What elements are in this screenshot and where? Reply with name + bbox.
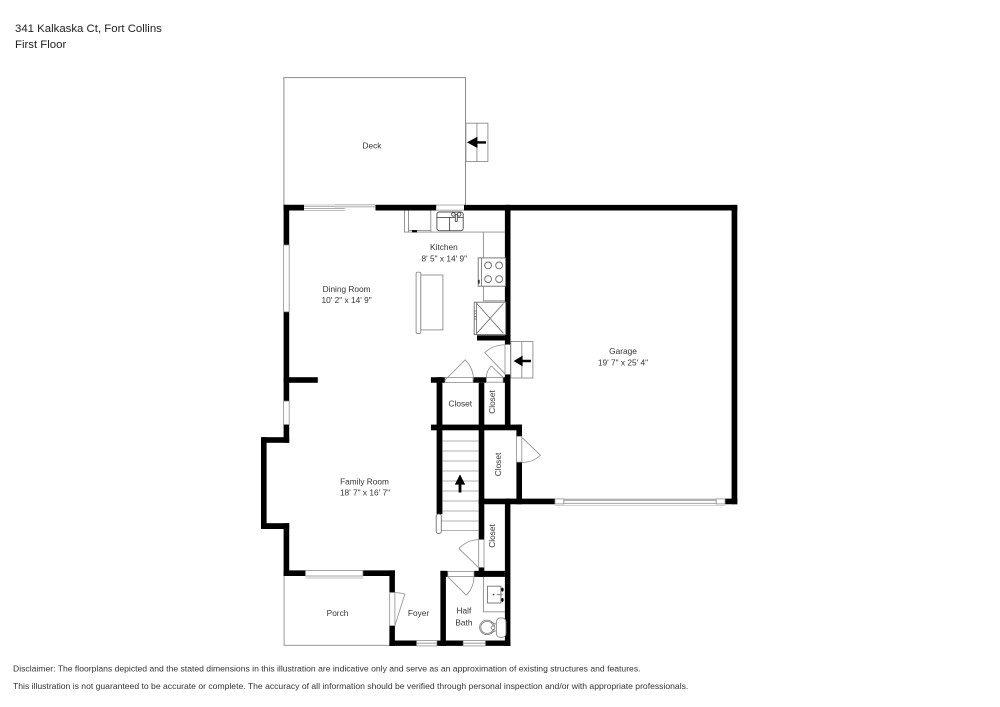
svg-text:First Floor: First Floor	[15, 39, 66, 51]
svg-text:8' 5" x 14' 9": 8' 5" x 14' 9"	[422, 254, 468, 264]
svg-text:Garage: Garage	[609, 346, 637, 356]
svg-text:Disclaimer: The floorplans dep: Disclaimer: The floorplans depicted and …	[13, 664, 641, 674]
svg-text:Kitchen: Kitchen	[430, 242, 458, 252]
svg-text:Half: Half	[457, 606, 472, 616]
svg-text:Closet: Closet	[493, 452, 503, 476]
svg-text:This illustration is not guara: This illustration is not guaranteed to b…	[13, 681, 688, 691]
svg-text:Porch: Porch	[327, 608, 349, 618]
svg-text:10' 2" x 14' 9": 10' 2" x 14' 9"	[322, 295, 372, 305]
svg-text:Bath: Bath	[455, 618, 472, 628]
svg-text:Foyer: Foyer	[408, 608, 429, 618]
svg-text:Deck: Deck	[363, 140, 383, 150]
svg-text:19' 7" x 25' 4": 19' 7" x 25' 4"	[598, 357, 648, 367]
svg-text:Closet: Closet	[487, 390, 497, 414]
svg-text:Closet: Closet	[487, 524, 497, 548]
svg-text:Dining Room: Dining Room	[323, 284, 371, 294]
svg-text:Closet: Closet	[449, 399, 473, 409]
svg-text:Family Room: Family Room	[340, 476, 389, 486]
svg-text:18' 7" x 16' 7": 18' 7" x 16' 7"	[340, 488, 390, 498]
svg-text:341 Kalkaska Ct, Fort Collins: 341 Kalkaska Ct, Fort Collins	[15, 23, 162, 35]
